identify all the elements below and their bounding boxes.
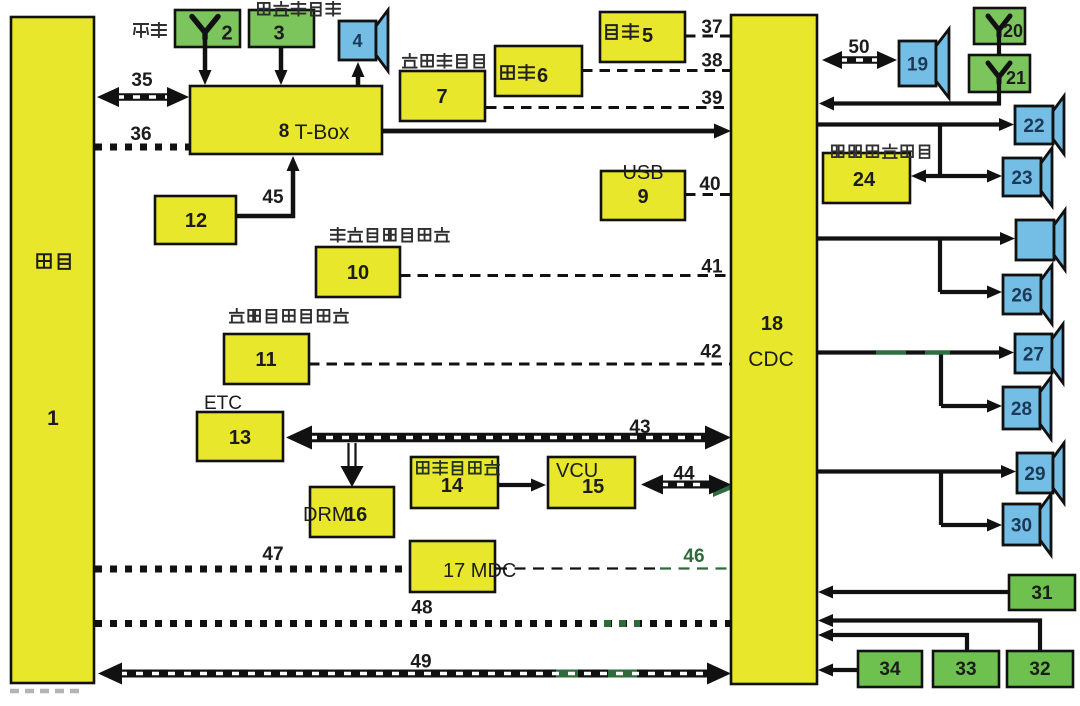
svg-text:4: 4	[352, 31, 362, 51]
svg-text:13: 13	[229, 427, 251, 449]
svg-text:27: 27	[1023, 344, 1044, 365]
svg-text:26: 26	[1011, 285, 1032, 306]
svg-text:CDC: CDC	[748, 348, 794, 371]
svg-text:22: 22	[1023, 116, 1044, 137]
svg-text:50: 50	[848, 37, 869, 58]
svg-text:9: 9	[637, 186, 648, 208]
svg-text:47: 47	[262, 544, 283, 565]
svg-text:28: 28	[1011, 399, 1032, 420]
svg-text:35: 35	[131, 70, 153, 91]
svg-text:10: 10	[347, 262, 369, 284]
svg-text:36: 36	[130, 124, 151, 145]
svg-text:34: 34	[879, 659, 901, 680]
svg-text:USB: USB	[622, 162, 663, 184]
svg-text:7: 7	[436, 86, 447, 108]
svg-text:24: 24	[853, 169, 876, 191]
svg-text:2: 2	[221, 23, 232, 45]
svg-text:29: 29	[1024, 464, 1045, 485]
svg-text:31: 31	[1031, 583, 1053, 604]
svg-text:12: 12	[185, 210, 207, 232]
svg-text:16: 16	[345, 504, 367, 526]
svg-text:45: 45	[262, 187, 284, 208]
svg-text:30: 30	[1011, 515, 1032, 536]
svg-text:38: 38	[701, 51, 722, 72]
svg-text:6: 6	[537, 65, 548, 87]
svg-text:17 MDC: 17 MDC	[443, 560, 516, 582]
svg-text:42: 42	[700, 342, 721, 363]
svg-text:20: 20	[1003, 21, 1023, 41]
svg-text:T-Box: T-Box	[295, 121, 350, 144]
svg-text:40: 40	[699, 174, 720, 195]
svg-text:21: 21	[1006, 68, 1026, 88]
svg-text:5: 5	[642, 25, 653, 47]
svg-text:11: 11	[255, 349, 276, 371]
svg-text:15: 15	[582, 476, 604, 498]
svg-text:18: 18	[761, 313, 783, 335]
svg-text:19: 19	[907, 54, 928, 75]
svg-text:32: 32	[1029, 659, 1050, 680]
svg-text:46: 46	[683, 546, 704, 567]
svg-text:39: 39	[701, 88, 722, 109]
svg-text:48: 48	[411, 598, 432, 619]
svg-text:23: 23	[1011, 168, 1032, 189]
svg-text:8: 8	[279, 121, 290, 142]
svg-text:14: 14	[441, 475, 464, 497]
svg-text:33: 33	[955, 659, 976, 680]
svg-text:49: 49	[410, 652, 431, 673]
svg-text:1: 1	[47, 407, 59, 430]
svg-text:DRM: DRM	[303, 504, 349, 526]
svg-text:3: 3	[273, 23, 284, 45]
